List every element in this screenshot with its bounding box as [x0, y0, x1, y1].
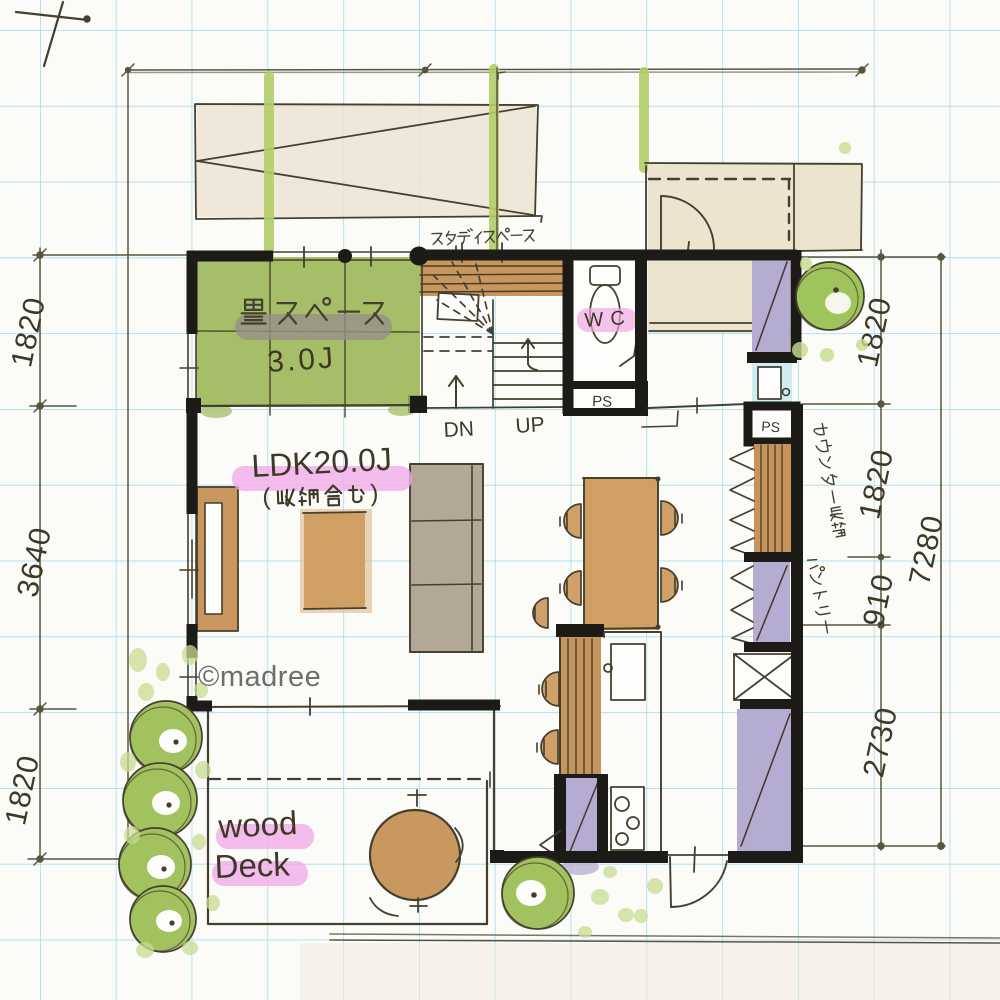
svg-text:wood: wood — [216, 804, 298, 845]
svg-text:PS: PS — [592, 393, 613, 411]
svg-text:): ) — [370, 480, 379, 507]
svg-text:UP: UP — [515, 413, 546, 438]
svg-text:Deck: Deck — [214, 845, 291, 885]
svg-text:©madree: ©madree — [198, 661, 321, 693]
svg-text:(: ( — [262, 484, 271, 511]
svg-text:PS: PS — [761, 418, 781, 435]
svg-text:LDK20.0J: LDK20.0J — [250, 441, 392, 484]
svg-text:WC: WC — [584, 307, 633, 332]
svg-text:3.0J: 3.0J — [266, 341, 337, 379]
svg-text:DN: DN — [443, 417, 475, 442]
